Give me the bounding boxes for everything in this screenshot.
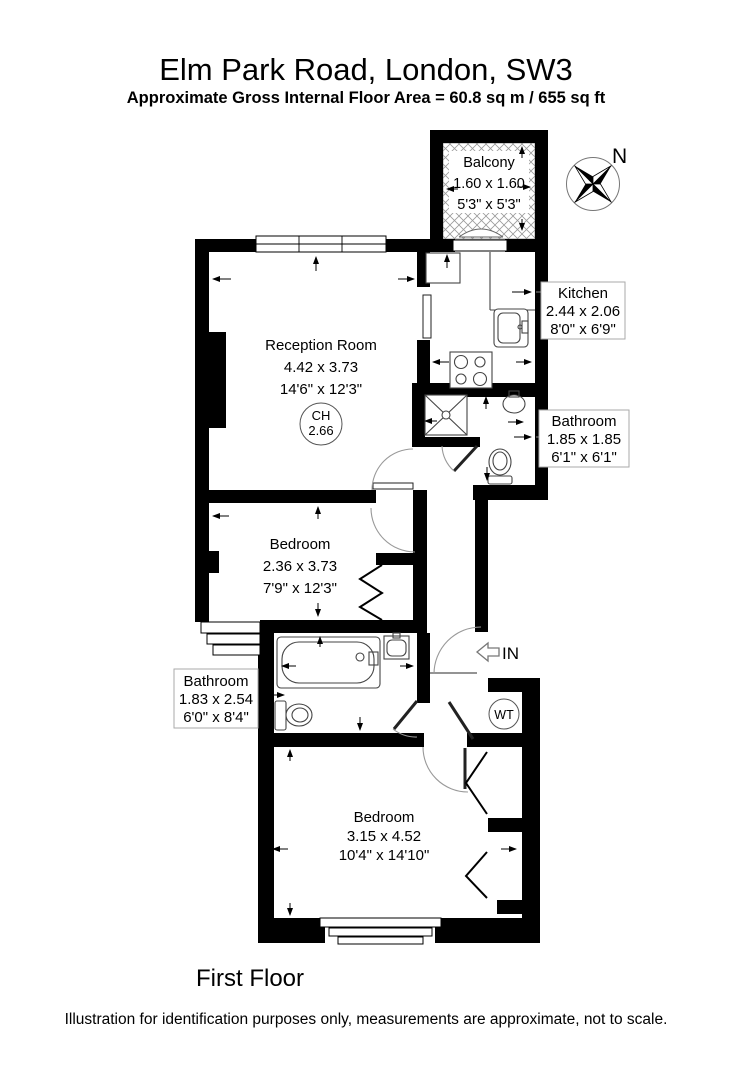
wt-closet-door	[449, 702, 473, 739]
svg-text:Bathroom: Bathroom	[183, 673, 248, 690]
bathroom-upper-label: Bathroom 1.85 x 1.85 6'1" x 6'1"	[547, 413, 621, 466]
floorplan-page: Elm Park Road, London, SW3 Approximate G…	[0, 0, 732, 1080]
bedroom-bottom-label: Bedroom 3.15 x 4.52 10'4" x 14'10"	[339, 809, 430, 864]
svg-text:1.85 x 1.85: 1.85 x 1.85	[547, 431, 621, 448]
floorplan-canvas: Elm Park Road, London, SW3 Approximate G…	[0, 0, 732, 1080]
ceiling-height-badge: CH 2.66	[300, 403, 342, 445]
svg-text:Bathroom: Bathroom	[551, 413, 616, 430]
compass-icon: N	[567, 145, 628, 211]
svg-text:WT: WT	[494, 708, 514, 722]
svg-text:6'0" x 8'4": 6'0" x 8'4"	[183, 709, 249, 726]
label-boxes	[174, 282, 629, 728]
svg-text:2.36 x 3.73: 2.36 x 3.73	[263, 558, 337, 575]
svg-text:5'3" x 5'3": 5'3" x 5'3"	[457, 197, 520, 213]
svg-text:10'4" x 14'10": 10'4" x 14'10"	[339, 847, 430, 864]
svg-text:14'6" x 12'3": 14'6" x 12'3"	[280, 381, 362, 398]
bedroom-middle-window	[201, 622, 260, 655]
bathroom-lower-label: Bathroom 1.83 x 2.54 6'0" x 8'4"	[179, 673, 253, 726]
svg-text:Reception Room: Reception Room	[265, 337, 377, 354]
bedroom-middle-label: Bedroom 2.36 x 3.73 7'9" x 12'3"	[263, 536, 337, 597]
kitchen-counter	[426, 252, 535, 310]
balcony-label: Balcony 1.60 x 1.60 5'3" x 5'3"	[453, 155, 525, 213]
room-labels: Balcony 1.60 x 1.60 5'3" x 5'3" Receptio…	[179, 155, 621, 864]
svg-text:1.60 x 1.60: 1.60 x 1.60	[453, 176, 525, 192]
svg-text:CH: CH	[312, 408, 331, 423]
entrance-arrow-icon	[477, 643, 499, 661]
svg-text:8'0" x 6'9": 8'0" x 6'9"	[550, 321, 616, 338]
entrance-label: IN	[502, 644, 519, 663]
entrance-marker: IN	[477, 643, 519, 663]
svg-text:3.15 x 4.52: 3.15 x 4.52	[347, 828, 421, 845]
closet-bifold-door-a	[466, 752, 487, 814]
disclaimer-text: Illustration for identification purposes…	[65, 1011, 668, 1028]
svg-text:7'9" x 12'3": 7'9" x 12'3"	[263, 580, 337, 597]
bedroom-bottom-bay-window	[320, 918, 441, 944]
kitchen-sink	[494, 309, 528, 347]
svg-text:Bedroom: Bedroom	[354, 809, 415, 826]
compass-north-label: N	[612, 145, 627, 168]
reception-door	[372, 449, 413, 490]
svg-text:2.44 x 2.06: 2.44 x 2.06	[546, 303, 620, 320]
balcony-door-opening	[453, 240, 507, 251]
bedroom-bottom-door	[423, 747, 468, 792]
basin-lower-icon	[384, 633, 409, 659]
bedroom-middle-door	[371, 508, 415, 552]
page-subtitle: Approximate Gross Internal Floor Area = …	[127, 89, 606, 107]
closet-bifold-door-b	[466, 852, 487, 898]
entrance-door	[430, 627, 481, 674]
reception-window	[256, 236, 386, 252]
toilet-lower-icon	[275, 701, 312, 730]
bathtub-icon	[277, 637, 380, 688]
bathroom-lower-door	[393, 701, 417, 737]
hob-icon	[450, 352, 492, 388]
page-title: Elm Park Road, London, SW3	[159, 52, 573, 87]
svg-text:6'1" x 6'1": 6'1" x 6'1"	[551, 449, 617, 466]
kitchen-door	[423, 295, 431, 338]
svg-text:Balcony: Balcony	[463, 155, 515, 171]
floor-label: First Floor	[196, 965, 304, 992]
svg-text:2.66: 2.66	[308, 423, 333, 438]
water-tank-badge: WT	[489, 699, 519, 729]
toilet-upper-icon	[488, 449, 512, 484]
svg-text:4.42 x 3.73: 4.42 x 3.73	[284, 359, 358, 376]
closet-bifold-door-middle	[360, 565, 382, 620]
svg-text:Bedroom: Bedroom	[270, 536, 331, 553]
bathroom-upper-door	[442, 446, 477, 471]
svg-text:1.83 x 2.54: 1.83 x 2.54	[179, 691, 253, 708]
shower-icon	[425, 395, 467, 435]
svg-text:Kitchen: Kitchen	[558, 285, 608, 302]
reception-label: Reception Room 4.42 x 3.73 14'6" x 12'3"	[265, 337, 377, 398]
